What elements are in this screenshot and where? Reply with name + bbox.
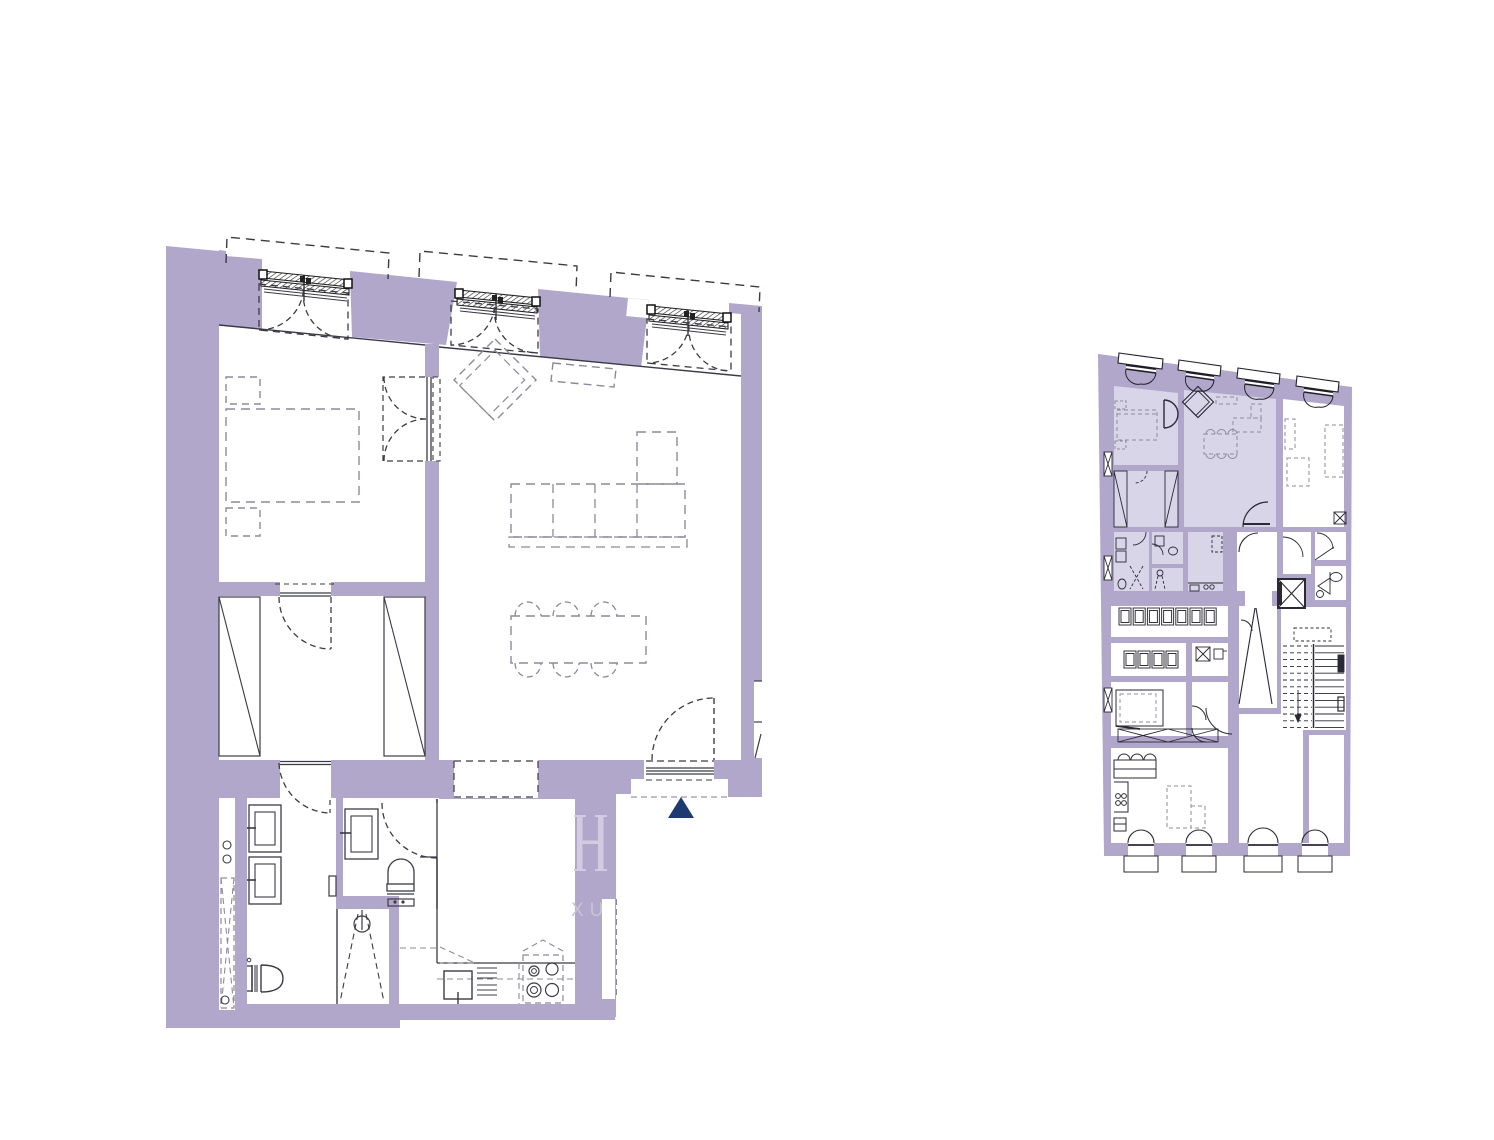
svg-text:XU: XU (571, 900, 609, 921)
